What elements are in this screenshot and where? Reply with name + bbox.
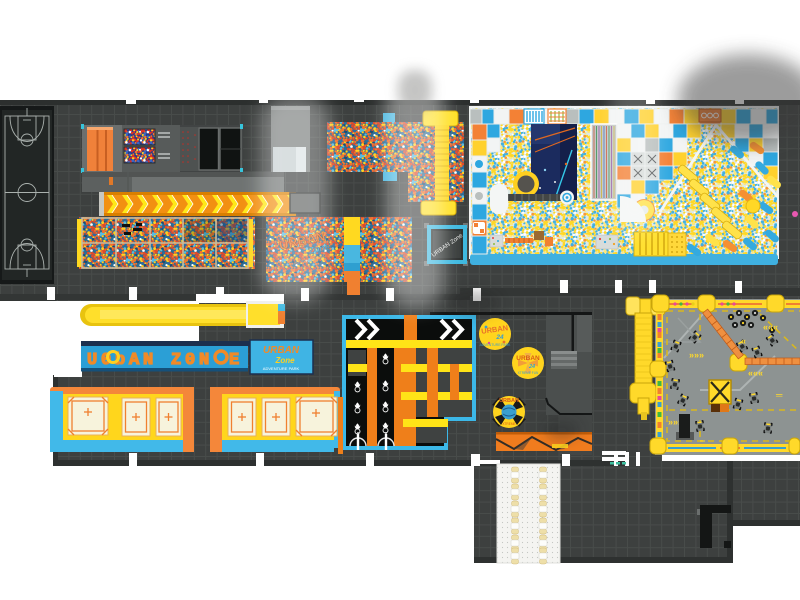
svg-text:24: 24 — [528, 364, 535, 370]
svg-text:«««: ««« — [748, 368, 763, 378]
svg-text:«: « — [741, 336, 746, 346]
svg-text:XTREME FUN: XTREME FUN — [518, 371, 539, 375]
svg-text:24: 24 — [495, 334, 504, 341]
svg-text:Zone: Zone — [274, 356, 295, 365]
svg-text:U0bAN Z0N: U0bAN Z0N — [87, 351, 213, 370]
svg-text:»»»: »»» — [689, 350, 704, 360]
svg-text:URBAN: URBAN — [499, 398, 519, 404]
svg-text:«««: ««« — [763, 322, 778, 332]
svg-text:ADVENTURE PARK: ADVENTURE PARK — [480, 343, 512, 347]
svg-text:URBAN: URBAN — [263, 345, 300, 356]
svg-text:ADVENTURE PARK: ADVENTURE PARK — [263, 366, 300, 371]
svg-text:E: E — [229, 351, 239, 370]
svg-text:URBAN: URBAN — [516, 355, 540, 362]
svg-text:XTREME: XTREME — [502, 422, 515, 426]
svg-text:═: ═ — [775, 390, 783, 400]
svg-text:═: ═ — [699, 438, 705, 445]
